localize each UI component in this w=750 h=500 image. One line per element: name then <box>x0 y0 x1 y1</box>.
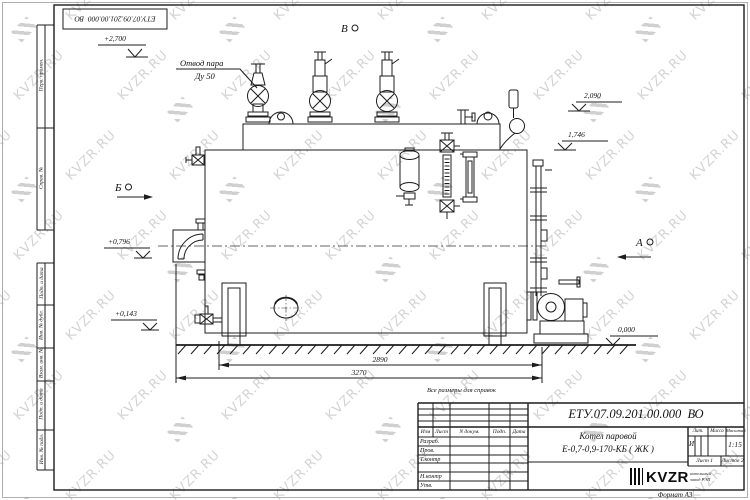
kvzr-caption-line1: котельный <box>690 471 711 476</box>
top-fitting <box>457 110 475 124</box>
steam-outlet-valve <box>246 64 270 122</box>
row-tkontr: Т.контр <box>420 457 440 463</box>
frame-cell-sprav-no: Справ. № <box>39 128 45 229</box>
view-b-arrow <box>144 194 153 200</box>
drawing-canvas: ЕТУ.07.09.201.00.000 ВО <box>0 0 750 500</box>
water-level-gauge <box>440 133 460 219</box>
scale-value: 1:15 <box>726 441 744 449</box>
col-data: Дата <box>510 430 528 436</box>
frame-cell-podp-data-2: Подп. и дата <box>39 380 45 429</box>
manhole <box>270 295 302 321</box>
mass-header: Масса <box>708 429 726 434</box>
boiler-drawing <box>158 52 636 354</box>
steam-outlet-leader <box>176 69 257 88</box>
row-prov: Пров. <box>420 448 434 454</box>
left-drum-valve <box>186 147 204 165</box>
lit-value: И <box>688 441 695 448</box>
scale-header: Масштаб <box>726 429 744 434</box>
reference-note: Все размеры для справок <box>427 388 496 395</box>
view-label-b: Б <box>114 182 122 194</box>
frame-cell-inv-dubl: Инв. № дубл. <box>39 304 45 347</box>
dim-text-3270: 3270 <box>351 368 367 377</box>
kvzr-logo: KVZR <box>646 469 689 486</box>
level-0000: 0,000 <box>618 325 635 334</box>
sheet-number: Лист 1 <box>688 459 721 465</box>
col-ndok: N докум. <box>450 430 489 436</box>
frame-cell-inv-podl: Инв. № подл. <box>39 429 45 469</box>
kvzr-caption-line2: завод РЭП <box>690 477 710 482</box>
doc-number: ЕТУ.07.09.201.00.000 ВО <box>528 408 744 421</box>
steam-outlet-label-line1: Отвод пара <box>180 58 223 68</box>
format-note: Формат А3 <box>640 492 710 499</box>
drawing-sheet: KVZR.RUKVZR.RUKVZR.RUKVZR.RUKVZR.RUKVZR.… <box>0 0 750 500</box>
frame-cell-perv-primen: Перв. примен. <box>39 24 45 127</box>
sheets-total: Листов 2 <box>721 459 744 465</box>
safety-valve-2 <box>375 52 399 122</box>
product-name-line1: Котел паровой <box>528 432 688 441</box>
row-razrab: Разраб. <box>420 439 439 445</box>
sheet-frame: ЕТУ.07.09.201.00.000 ВО <box>3 3 748 498</box>
lifting-lug-left <box>269 112 293 124</box>
level-0796: +0,796 <box>108 237 130 246</box>
col-podp: Подп. <box>489 430 510 436</box>
kvzr-coil-icon <box>630 468 643 485</box>
product-name-line2: Е-0,7-0,9-170-КБ ( ЖК ) <box>528 445 688 454</box>
view-a-arrow <box>617 254 626 260</box>
annotations: Отвод пара Ду 50 +2,700 2,090 1,746 +0,7… <box>98 23 658 383</box>
level-2090: 2,090 <box>584 91 601 100</box>
boiler-shell <box>205 150 527 333</box>
col-list: Лист <box>433 430 450 436</box>
drain-valve <box>195 306 222 324</box>
level-2700: +2,700 <box>104 34 126 43</box>
steam-outlet-label-line2: Ду 50 <box>194 71 216 81</box>
lit-header: Лит. <box>688 429 708 434</box>
frame-cell-podp-data-1: Подп. и дата <box>39 262 45 304</box>
row-utv: Утв. <box>420 483 432 489</box>
level-1746: 1,746 <box>568 130 585 139</box>
view-label-v: В <box>341 23 348 35</box>
separator-vessel <box>396 148 419 205</box>
ground-hatch <box>178 345 628 354</box>
dim-text-2890: 2890 <box>373 355 388 364</box>
safety-valve-1 <box>308 52 332 122</box>
burner-assembly <box>173 219 205 262</box>
row-nkontr: Н.контр <box>420 474 442 480</box>
col-izm: Изм <box>418 430 433 436</box>
corner-stamp-text: ЕТУ.07.09.201.00.000 ВО <box>74 15 157 24</box>
frame-cell-vzam-inv: Взам. инв. № <box>39 347 45 380</box>
support-legs <box>222 283 506 345</box>
blowdown-pipe <box>530 160 552 296</box>
pressure-sensor <box>500 90 525 149</box>
lifting-lug-right <box>477 113 499 124</box>
level-0143: +0,143 <box>115 309 137 318</box>
sight-glass <box>460 152 477 202</box>
view-label-a: А <box>635 237 643 249</box>
drum-top-platform <box>243 124 500 150</box>
